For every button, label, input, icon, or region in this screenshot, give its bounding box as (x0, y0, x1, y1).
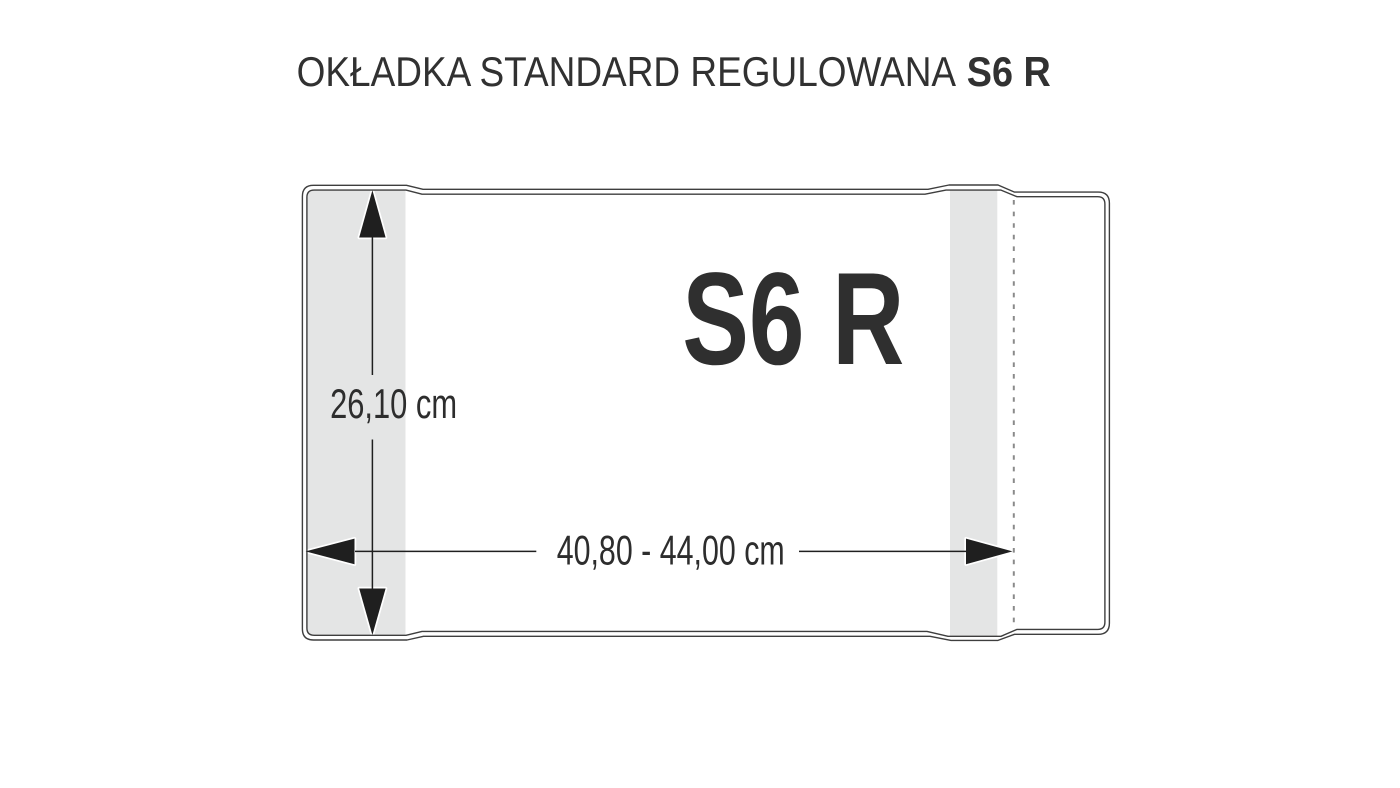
svg-text:40,80 - 44,00 cm: 40,80 - 44,00 cm (557, 527, 785, 574)
svg-text:OKŁADKA STANDARD REGULOWANA: OKŁADKA STANDARD REGULOWANA (297, 48, 957, 95)
svg-text:S6 R: S6 R (967, 48, 1051, 95)
svg-text:26,10 cm: 26,10 cm (330, 380, 457, 427)
svg-text:S6 R: S6 R (682, 245, 904, 392)
